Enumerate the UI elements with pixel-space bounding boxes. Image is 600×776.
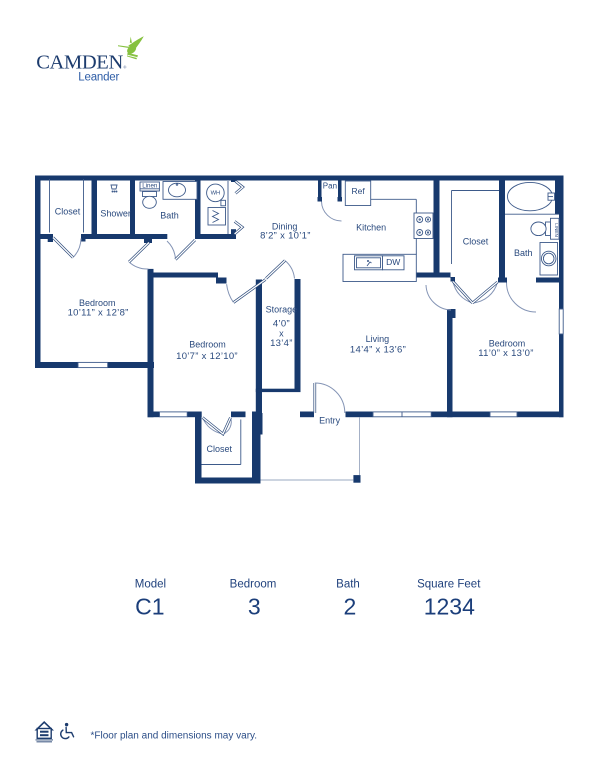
svg-text:Ref: Ref (351, 186, 365, 196)
svg-text:Model: Model (135, 579, 166, 591)
svg-text:CAMDEN: CAMDEN (36, 51, 123, 73)
svg-text:Entry: Entry (319, 415, 341, 425)
svg-text:13’4”: 13’4” (270, 338, 293, 349)
svg-text:Bedroom: Bedroom (230, 579, 277, 591)
svg-text:C1: C1 (135, 593, 164, 619)
svg-text:10’7” x 12’10”: 10’7” x 12’10” (176, 351, 238, 362)
svg-text:Closet: Closet (55, 207, 81, 217)
svg-text:Pan: Pan (323, 181, 337, 190)
svg-text:2: 2 (344, 593, 357, 619)
svg-text:WH: WH (211, 191, 221, 197)
svg-text:Closet: Closet (207, 444, 233, 454)
svg-text:Linen: Linen (142, 183, 158, 190)
svg-text:Bedroom: Bedroom (189, 340, 226, 350)
svg-text:8’2” x 10’1”: 8’2” x 10’1” (260, 231, 311, 242)
svg-text:Kitchen: Kitchen (356, 223, 386, 233)
svg-text:*Floor plan and dimensions may: *Floor plan and dimensions may vary. (91, 731, 258, 742)
svg-text:Square Feet: Square Feet (417, 579, 481, 591)
svg-text:10’11” x 12’8”: 10’11” x 12’8” (68, 307, 129, 318)
svg-text:Leander: Leander (78, 72, 119, 84)
svg-text:Bath: Bath (514, 248, 533, 258)
svg-text:LINEN: LINEN (554, 223, 559, 237)
svg-text:1234: 1234 (424, 593, 475, 619)
svg-text:DW: DW (386, 257, 400, 267)
svg-text:3: 3 (248, 593, 261, 619)
svg-text:Storage: Storage (266, 304, 298, 314)
svg-text:11’0” x 13’0”: 11’0” x 13’0” (478, 348, 533, 359)
svg-text:Bath: Bath (160, 210, 179, 220)
svg-text:x: x (279, 328, 284, 338)
svg-text:Shower: Shower (100, 208, 131, 218)
svg-text:®: ® (123, 64, 126, 69)
svg-text:Bedroom: Bedroom (489, 339, 526, 349)
svg-text:Closet: Closet (463, 237, 489, 247)
svg-text:Bath: Bath (336, 579, 360, 591)
svg-text:Living: Living (366, 334, 390, 344)
svg-text:14’4” x 13’6”: 14’4” x 13’6” (350, 345, 406, 356)
